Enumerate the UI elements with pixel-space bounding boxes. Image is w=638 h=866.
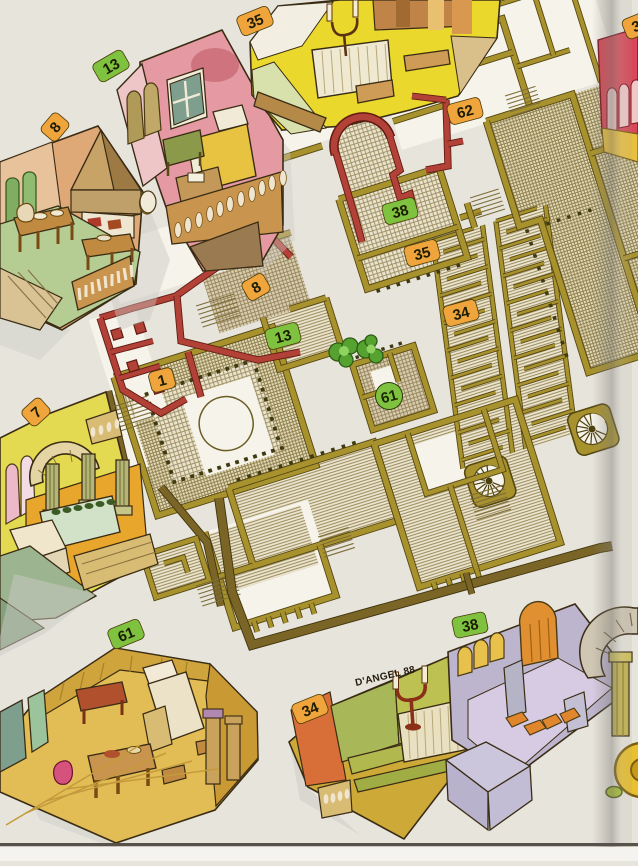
svg-text:38: 38 [460, 616, 480, 636]
